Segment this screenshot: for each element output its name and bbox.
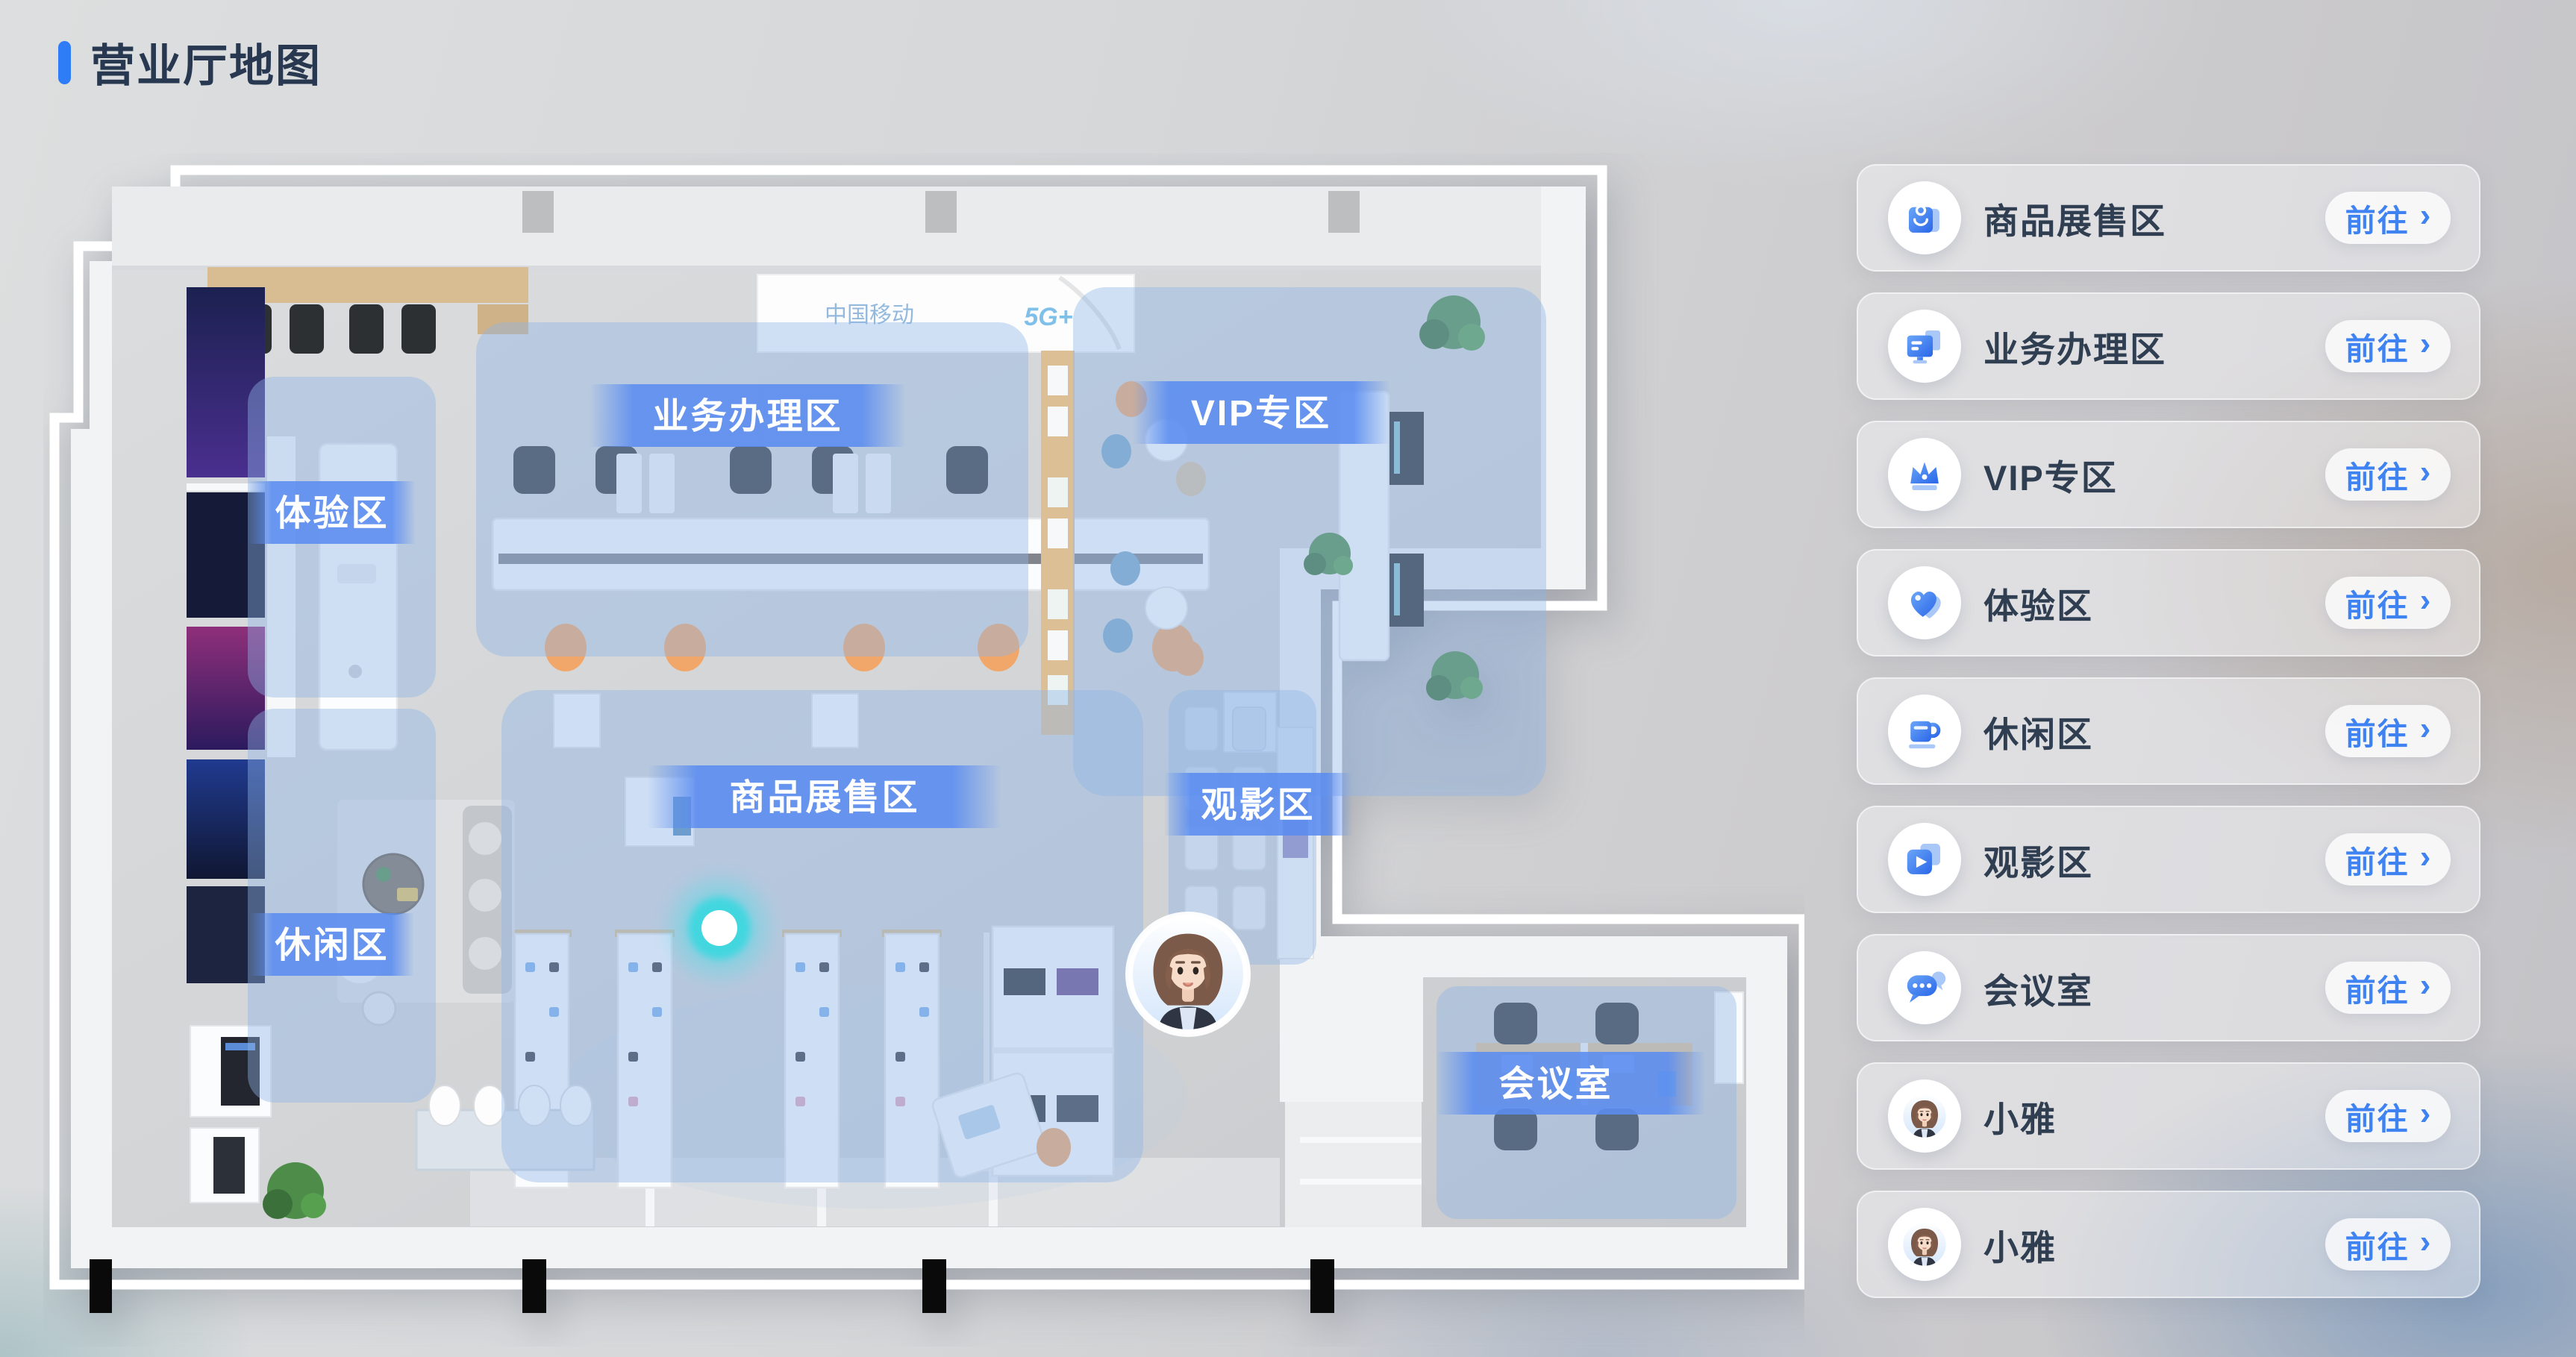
go-button-label: 前往 xyxy=(2345,324,2410,369)
svg-text:体验区: 体验区 xyxy=(275,494,389,533)
sidebar-item-1[interactable]: 业务办理区 前往 › xyxy=(1857,292,2480,400)
sidebar-item-label: VIP专区 xyxy=(1983,449,2118,501)
svg-text:VIP专区: VIP专区 xyxy=(1191,394,1331,433)
current-location-dot[interactable] xyxy=(670,879,769,977)
sidebar-item-label: 休闲区 xyxy=(1983,706,2093,757)
sidebar-item-7[interactable]: 小雅 前往 › xyxy=(1857,1062,2480,1170)
sidebar-item-8[interactable]: 小雅 前往 › xyxy=(1857,1191,2480,1298)
location-list: 商品展售区 前往 › 业务办理区 前往 › VIP专区 前往 › 体验区 前往 xyxy=(1857,164,2480,1319)
avatar-xiaoya xyxy=(1901,1221,1948,1267)
map-zone-product-display-area[interactable] xyxy=(501,690,1143,1182)
go-button-label: 前往 xyxy=(2345,195,2410,240)
map-zone-leisure-area[interactable] xyxy=(248,709,436,1103)
go-button[interactable]: 前往 › xyxy=(2325,320,2451,372)
sidebar-item-label: 商品展售区 xyxy=(1983,192,2166,244)
go-button[interactable]: 前往 › xyxy=(2325,705,2451,757)
sidebar-item-0[interactable]: 商品展售区 前往 › xyxy=(1857,164,2480,272)
sidebar-item-label: 小雅 xyxy=(1983,1219,2057,1270)
banner-5g-text: 5G+ xyxy=(1024,303,1072,331)
zone-label-meeting-room[interactable]: 会议室 xyxy=(1437,1052,1705,1115)
passage-step-line-2 xyxy=(1300,1179,1422,1185)
chevron-right-icon: › xyxy=(2420,1097,2431,1130)
monitor-icon xyxy=(1901,323,1948,369)
sidebar-item-6[interactable]: 会议室 前往 › xyxy=(1857,934,2480,1041)
go-button-label: 前往 xyxy=(2345,452,2410,497)
zone-label-experience[interactable]: 体验区 xyxy=(248,481,416,544)
zone-label-vip[interactable]: VIP专区 xyxy=(1133,381,1389,444)
go-button[interactable]: 前往 › xyxy=(2325,577,2451,629)
svg-text:会议室: 会议室 xyxy=(1498,1065,1613,1104)
go-button[interactable]: 前往 › xyxy=(2325,1090,2451,1142)
shopping-bag-icon xyxy=(1901,195,1948,241)
go-button[interactable]: 前往 › xyxy=(2325,833,2451,886)
chevron-right-icon: › xyxy=(2420,456,2431,489)
go-button-label: 前往 xyxy=(2345,580,2410,625)
sidebar-item-2[interactable]: VIP专区 前往 › xyxy=(1857,421,2480,528)
go-button-label: 前往 xyxy=(2345,1222,2410,1267)
chevron-right-icon: › xyxy=(2420,199,2431,232)
sidebar-item-5[interactable]: 观影区 前往 › xyxy=(1857,806,2480,913)
sidebar-item-label: 业务办理区 xyxy=(1983,321,2166,372)
annex-passage xyxy=(1285,1102,1422,1227)
chevron-right-icon: › xyxy=(2420,1226,2431,1259)
go-button-label: 前往 xyxy=(2345,709,2410,753)
sidebar-item-label: 会议室 xyxy=(1983,962,2093,1014)
zone-label-leisure[interactable]: 休闲区 xyxy=(250,913,414,976)
chat-bubbles-icon xyxy=(1901,965,1948,1011)
page-header: 营业厅地图 xyxy=(58,30,322,95)
heart-icon xyxy=(1901,580,1948,626)
go-button[interactable]: 前往 › xyxy=(2325,192,2451,244)
svg-text:业务办理区: 业务办理区 xyxy=(652,397,842,436)
map-zone-business-handling-area[interactable] xyxy=(476,322,1028,656)
go-button-label: 前往 xyxy=(2345,965,2410,1010)
sidebar-item-label: 观影区 xyxy=(1983,834,2093,886)
go-button[interactable]: 前往 › xyxy=(2325,1218,2451,1270)
go-button-label: 前往 xyxy=(2345,837,2410,882)
go-button-label: 前往 xyxy=(2345,1094,2410,1138)
svg-text:休闲区: 休闲区 xyxy=(274,926,389,965)
coffee-cup-icon xyxy=(1901,708,1948,754)
top-wall-face xyxy=(112,187,1541,270)
floor-map: 中国移动 5G+ xyxy=(43,153,1804,1347)
sidebar-item-label: 小雅 xyxy=(1983,1091,2057,1142)
zone-label-product-display[interactable]: 商品展售区 xyxy=(648,765,1001,828)
page-title: 营业厅地图 xyxy=(90,30,322,95)
passage-step-line xyxy=(1300,1137,1422,1143)
chevron-right-icon: › xyxy=(2420,584,2431,617)
zone-label-business-handling[interactable]: 业务办理区 xyxy=(590,384,906,447)
chevron-right-icon: › xyxy=(2420,841,2431,874)
chevron-right-icon: › xyxy=(2420,712,2431,745)
go-button[interactable]: 前往 › xyxy=(2325,962,2451,1014)
zone-label-movie-viewing[interactable]: 观影区 xyxy=(1164,773,1352,836)
sidebar-item-3[interactable]: 体验区 前往 › xyxy=(1857,549,2480,656)
map-marker-xiaoya[interactable] xyxy=(1125,912,1251,1037)
svg-text:观影区: 观影区 xyxy=(1201,786,1315,825)
svg-text:商品展售区: 商品展售区 xyxy=(729,778,919,818)
title-accent-bar xyxy=(58,41,71,84)
video-play-icon xyxy=(1901,836,1948,883)
chevron-right-icon: › xyxy=(2420,969,2431,1002)
go-button[interactable]: 前往 › xyxy=(2325,448,2451,501)
sidebar-item-4[interactable]: 休闲区 前往 › xyxy=(1857,677,2480,785)
crown-icon xyxy=(1901,451,1948,498)
avatar-xiaoya xyxy=(1901,1093,1948,1139)
sidebar-item-label: 体验区 xyxy=(1983,577,2093,629)
chevron-right-icon: › xyxy=(2420,328,2431,360)
